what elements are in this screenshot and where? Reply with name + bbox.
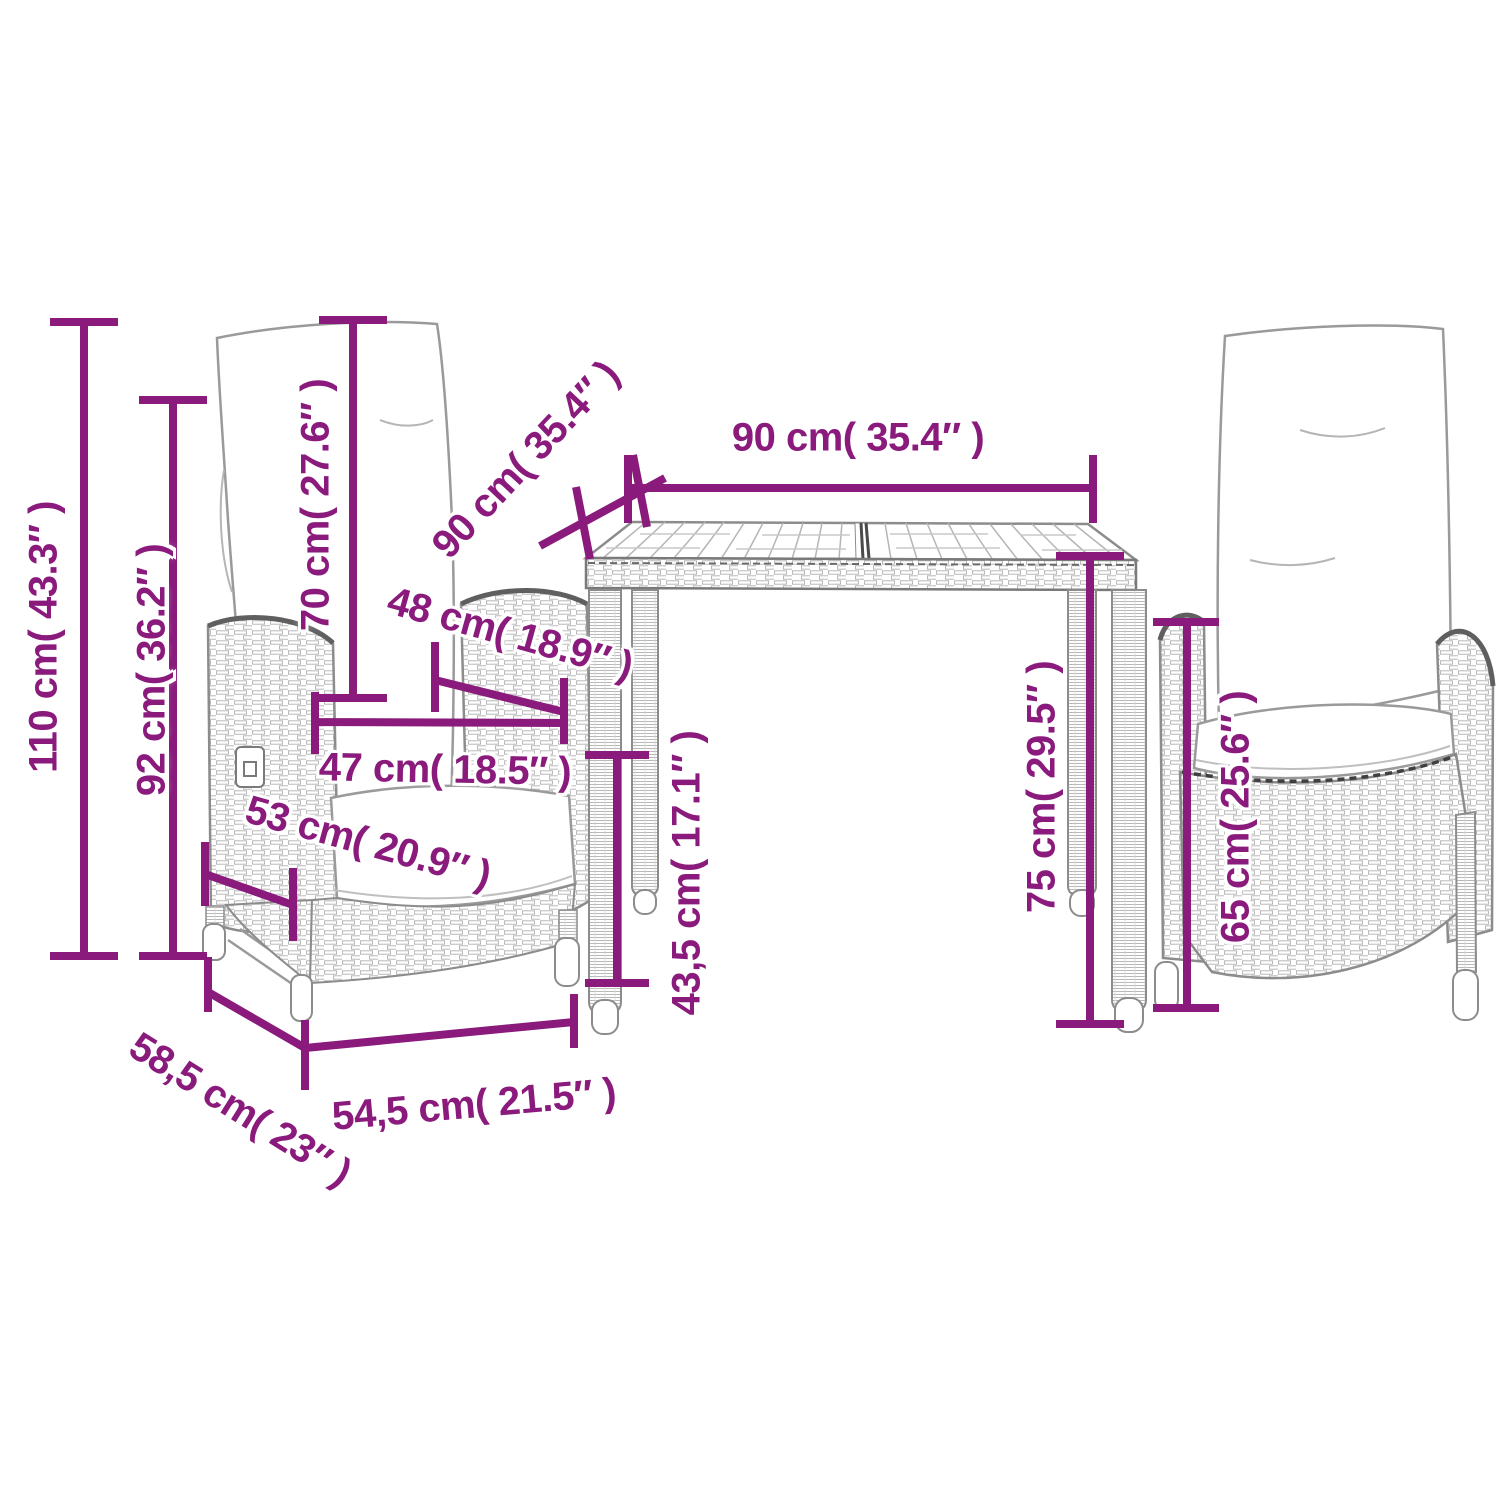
dim-label-chair-total-height: 110 cm( 43.3″ ) xyxy=(22,501,67,773)
dim-line-table-width xyxy=(628,455,1093,523)
chair-right-foot-right xyxy=(1453,970,1478,1020)
chair-left-foot-right xyxy=(555,938,579,986)
chair-right-back-cushion xyxy=(1218,325,1451,728)
dim-line-chair-total-depth xyxy=(208,957,305,1090)
furniture-line-art xyxy=(0,0,1500,1500)
chair-left-recline-button xyxy=(236,747,264,787)
table-foot-front-left xyxy=(592,1000,618,1034)
chair-left-foot-front xyxy=(291,975,312,1021)
dim-label-table-width: 90 cm( 35.4″ ) xyxy=(732,416,984,461)
table-leg-rear-left xyxy=(632,590,658,896)
dim-label-table-leg-clearance: 43,5 cm( 17.1″ ) xyxy=(665,731,710,1016)
dim-label-chair-back-height: 92 cm( 36.2″ ) xyxy=(130,544,175,796)
chair-left-base-side xyxy=(226,900,312,983)
dim-line-chair-front-width xyxy=(305,994,574,1048)
dim-label-seat-front-width: 47 cm( 18.5″ ) xyxy=(318,745,571,794)
table-foot-rear-left xyxy=(634,890,656,914)
chair-right xyxy=(1155,325,1493,1020)
table-leg-front-right xyxy=(1112,590,1146,1012)
dim-label-backrest-cushion-height: 70 cm( 27.6″ ) xyxy=(294,379,339,631)
diagram-canvas: 110 cm( 43.3″ ) 92 cm( 36.2″ ) 70 cm( 27… xyxy=(0,0,1500,1500)
dim-label-armrest-height: 65 cm( 25.6″ ) xyxy=(1214,691,1259,943)
dim-label-table-height: 75 cm( 29.5″ ) xyxy=(1020,661,1065,913)
chair-right-foot-left xyxy=(1155,962,1178,1010)
